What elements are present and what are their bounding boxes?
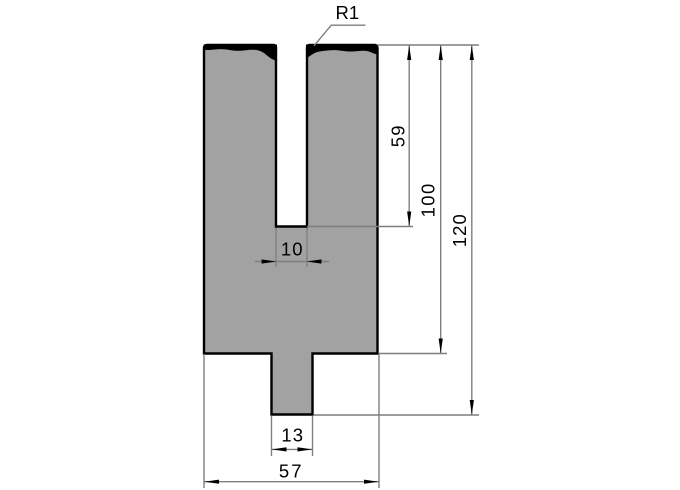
svg-text:100: 100 <box>418 182 439 217</box>
svg-text:10: 10 <box>281 238 304 259</box>
svg-text:59: 59 <box>387 124 408 147</box>
svg-text:120: 120 <box>449 213 470 247</box>
svg-text:57: 57 <box>279 460 304 481</box>
svg-text:R1: R1 <box>336 2 360 23</box>
svg-text:13: 13 <box>281 425 304 446</box>
